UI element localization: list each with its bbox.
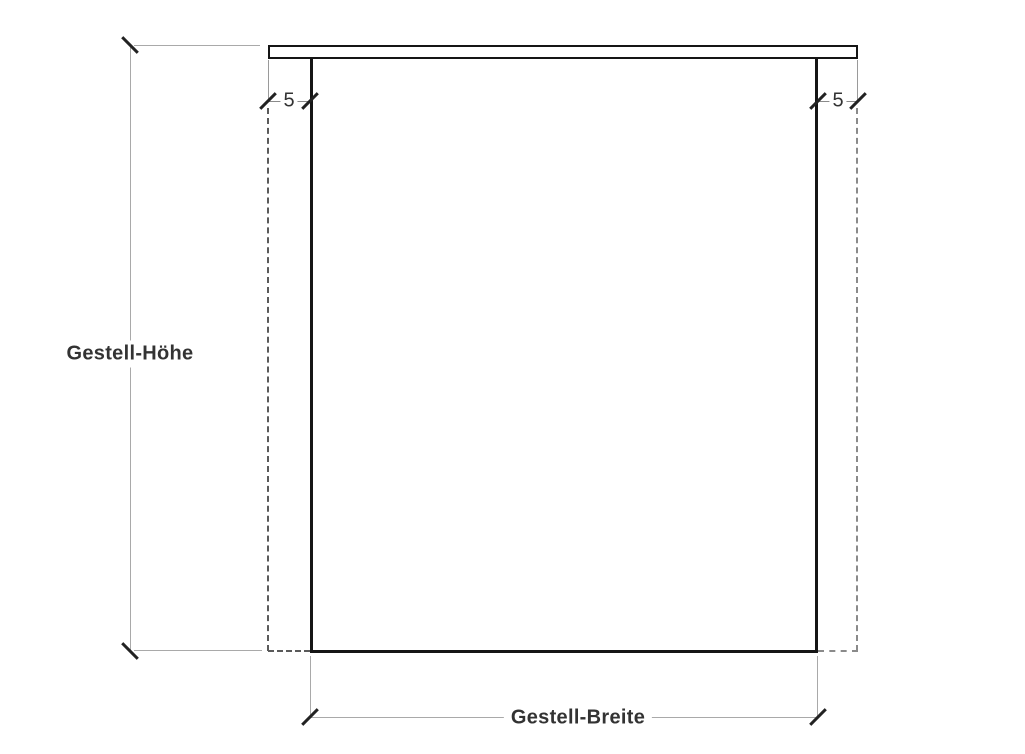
right-overhang-extension-line — [857, 60, 858, 100]
left-overhang-label: 5 — [280, 90, 297, 113]
left-overhang-extension-line — [268, 60, 269, 100]
width-dimension-label: Gestell-Breite — [504, 705, 652, 732]
height-extension-line-top — [134, 45, 260, 46]
width-extension-line-right — [817, 656, 818, 717]
right-projection-dashed-line — [856, 108, 858, 651]
frame-outline — [310, 59, 818, 653]
right-overhang-label: 5 — [829, 90, 846, 113]
width-extension-line-left — [310, 656, 311, 717]
bottom-right-projection-dashed-line — [818, 650, 858, 652]
dimension-drawing-canvas: Gestell-Höhe Gestell-Breite 5 5 — [0, 0, 1025, 754]
height-extension-line-bottom — [134, 650, 262, 651]
left-projection-dashed-line — [267, 108, 269, 651]
bottom-left-projection-dashed-line — [268, 650, 310, 652]
tabletop-outline — [268, 45, 858, 59]
height-dimension-label: Gestell-Höhe — [60, 341, 201, 368]
